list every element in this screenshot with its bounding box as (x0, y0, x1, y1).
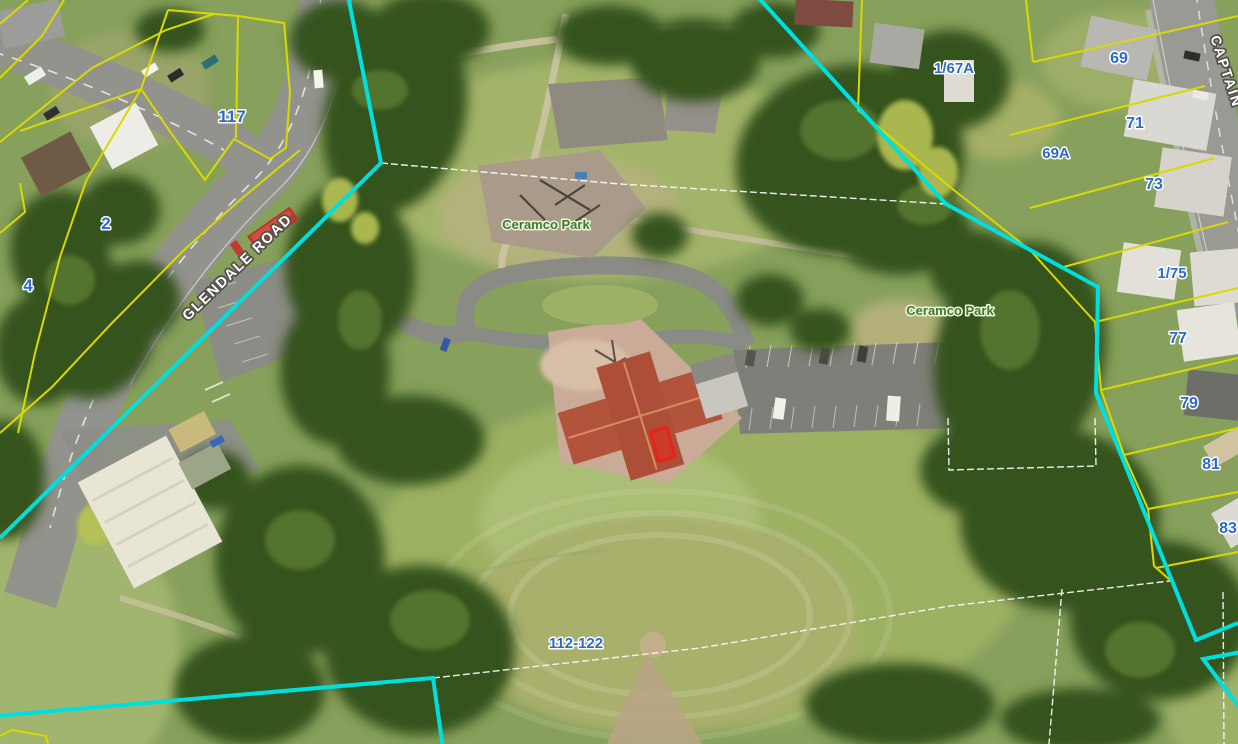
parcel-line (1148, 492, 1238, 509)
park-boundary-cyan (0, 0, 1238, 744)
parcel-label-112-122: 112-122 (549, 635, 603, 652)
parcel-label-69: 69 (1110, 50, 1128, 67)
parcel-line (1010, 86, 1205, 135)
parcel-label-2: 2 (101, 214, 110, 233)
parcel-label-81: 81 (1202, 456, 1220, 473)
parcel-line (0, 183, 25, 233)
parcel-line (381, 163, 946, 204)
parcel-label-83: 83 (1219, 520, 1237, 537)
gis-overlay: 117 2 4 1/67A 69 69A 71 73 1/75 77 79 81… (0, 0, 1238, 744)
parcel-label-4: 4 (23, 276, 33, 295)
parcel-label-69a: 69A (1042, 145, 1070, 162)
parcel-line (1049, 589, 1062, 744)
parcel-label-77: 77 (1169, 330, 1187, 347)
parcel-label-79: 79 (1180, 395, 1198, 412)
boundary-segment (0, 678, 443, 744)
parcel-label-1-67a: 1/67A (934, 60, 974, 77)
parcel-lines-white (381, 163, 1224, 744)
selected-feature-highlight (650, 427, 674, 461)
map-viewport[interactable]: 117 2 4 1/67A 69 69A 71 73 1/75 77 79 81… (0, 0, 1238, 744)
road-label-glendale: GLENDALE ROAD (180, 211, 296, 324)
park-label-ceramco-1: Ceramco Park (502, 217, 590, 232)
parcel-line (20, 89, 141, 131)
parcel-line (0, 0, 64, 78)
parcel-line (1030, 158, 1215, 208)
road-name-labels: GLENDALE ROAD CAPTAIN (180, 33, 1238, 324)
park-name-labels: Ceramco Park Ceramco Park (502, 217, 994, 318)
parcel-lines-yellow (0, 0, 1238, 744)
parcel-line (1026, 0, 1033, 62)
park-label-ceramco-2: Ceramco Park (906, 303, 994, 318)
parcel-line (1095, 288, 1238, 322)
road-label-captain: CAPTAIN (1207, 33, 1238, 109)
boundary-segment (1203, 652, 1238, 708)
parcel-line (1060, 222, 1228, 268)
parcel-line (0, 14, 214, 142)
parcel-line (1156, 552, 1238, 568)
parcel-label-1-75: 1/75 (1157, 265, 1186, 282)
parcel-line (141, 10, 290, 180)
parcel-line (1223, 592, 1224, 744)
parcel-line (858, 0, 1170, 580)
parcel-line (1124, 428, 1238, 455)
parcel-number-labels: 117 2 4 1/67A 69 69A 71 73 1/75 77 79 81… (23, 50, 1237, 652)
parcel-label-117: 117 (218, 107, 245, 126)
parcel-line (18, 89, 141, 433)
parcel-line (1033, 16, 1238, 62)
parcel-line (1101, 358, 1238, 390)
parcel-line (433, 581, 1170, 678)
parcel-label-71: 71 (1126, 115, 1144, 132)
parcel-line (948, 418, 1096, 470)
parcel-label-73: 73 (1145, 176, 1163, 193)
parcel-line (0, 730, 48, 744)
parcel-line (0, 0, 28, 24)
